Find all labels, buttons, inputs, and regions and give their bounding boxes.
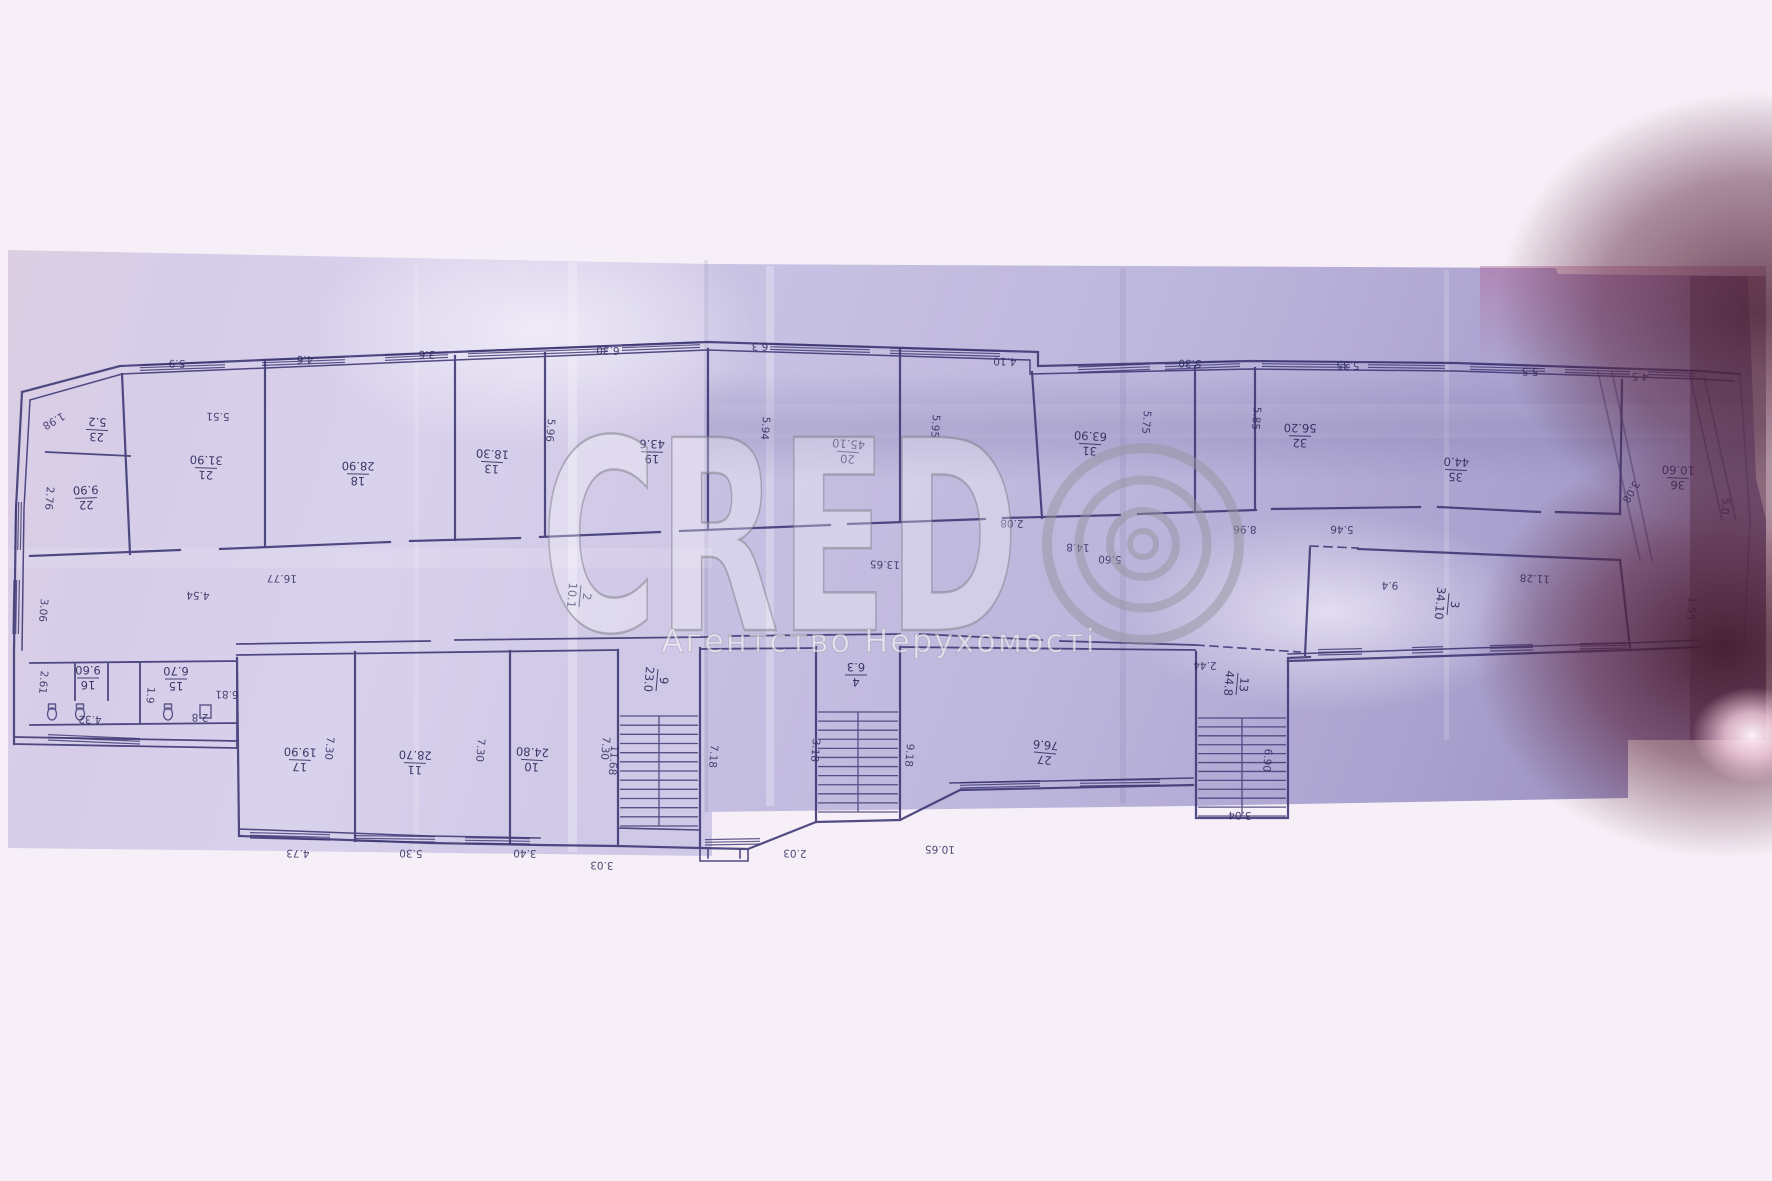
dimension-label: 5.75: [1139, 410, 1153, 434]
dimension-label: 7.18: [706, 744, 720, 768]
dimension-label: 4.6: [296, 353, 313, 365]
dimension-label: 5.46: [1330, 523, 1354, 535]
dimension-label: 5.51: [206, 410, 230, 422]
watermark-subtitle-text: Агентство Нерухомості: [661, 622, 1096, 660]
svg-text:5.75: 5.75: [1139, 410, 1153, 434]
svg-text:18: 18: [350, 474, 365, 488]
svg-text:1.9: 1.9: [143, 686, 156, 704]
svg-text:34.10: 34.10: [1432, 586, 1449, 620]
dimension-label: 6.81: [215, 688, 239, 700]
dimension-label: 16.77: [267, 572, 297, 585]
svg-text:18.30: 18.30: [476, 446, 510, 462]
dimension-label: 9.18: [902, 743, 916, 767]
dimension-label: 2.61: [36, 670, 50, 694]
svg-text:63.90: 63.90: [1074, 428, 1108, 444]
dimension-label: 4.73: [286, 847, 310, 859]
svg-text:31.90: 31.90: [190, 452, 223, 467]
dimension-label: 4.32: [78, 713, 102, 725]
svg-text:2.8: 2.8: [191, 711, 208, 723]
dimension-label: 4.54: [186, 589, 210, 601]
svg-text:4.10: 4.10: [993, 355, 1017, 367]
dimension-label: 9.4: [1381, 579, 1398, 591]
dimension-label: 6.3: [751, 340, 768, 352]
dimension-label: 2.76: [42, 486, 56, 511]
svg-text:15: 15: [169, 679, 184, 693]
svg-text:23: 23: [89, 430, 104, 445]
dimension-label: 6.30: [596, 344, 620, 356]
svg-text:9.60: 9.60: [75, 663, 101, 677]
dimension-label: 7.30: [322, 736, 336, 760]
svg-text:3.40: 3.40: [513, 847, 537, 859]
svg-text:13: 13: [1236, 677, 1251, 693]
dimension-label: 4.10: [993, 355, 1017, 367]
dimension-label: 2.03: [783, 847, 807, 859]
dimension-label: 3.40: [513, 847, 537, 859]
svg-text:4.54: 4.54: [186, 589, 210, 601]
svg-text:6.81: 6.81: [215, 688, 239, 700]
svg-text:6.30: 6.30: [596, 344, 620, 356]
dimension-label: 3.06: [36, 598, 50, 623]
svg-text:13: 13: [484, 462, 499, 477]
dimension-label: 1.9: [143, 686, 156, 704]
svg-text:27: 27: [1036, 752, 1052, 767]
svg-text:32: 32: [1292, 436, 1307, 450]
svg-text:56.20: 56.20: [1284, 421, 1317, 436]
dimension-label: 2.44: [1193, 659, 1217, 671]
svg-text:28.70: 28.70: [399, 747, 432, 762]
svg-text:5.30: 5.30: [399, 847, 423, 859]
svg-text:6.3: 6.3: [751, 340, 768, 352]
svg-text:44.0: 44.0: [1443, 454, 1469, 469]
svg-text:5.35: 5.35: [1336, 359, 1360, 371]
svg-text:9.4: 9.4: [1381, 579, 1398, 591]
svg-text:19.90: 19.90: [284, 744, 317, 759]
svg-text:5.2: 5.2: [88, 415, 107, 430]
svg-text:3.06: 3.06: [36, 598, 50, 623]
svg-text:22: 22: [79, 498, 94, 513]
svg-text:5.51: 5.51: [206, 410, 230, 422]
svg-text:24.80: 24.80: [516, 744, 550, 760]
dimension-label: 5.30: [399, 847, 423, 859]
svg-text:7.18: 7.18: [706, 744, 720, 768]
svg-text:3: 3: [1448, 600, 1463, 609]
svg-text:5.85: 5.85: [1249, 406, 1263, 430]
svg-text:4.32: 4.32: [78, 713, 102, 725]
svg-text:76.6: 76.6: [1032, 737, 1059, 753]
floor-plan-scan: 235.2229.902131.901828.901318.301943.620…: [0, 0, 1772, 1181]
dimension-label: 6.90: [1260, 748, 1274, 772]
svg-text:17: 17: [292, 760, 307, 775]
dimension-label: 3.18: [808, 738, 822, 762]
svg-text:3.03: 3.03: [590, 859, 614, 871]
dimension-label: 3.03: [590, 859, 614, 871]
svg-text:3.04: 3.04: [1228, 809, 1252, 821]
paper-glare-right: [1120, 512, 1540, 712]
svg-text:21: 21: [198, 468, 213, 483]
svg-text:7.30: 7.30: [322, 736, 336, 760]
svg-text:2.61: 2.61: [36, 670, 50, 694]
dimension-label: 7.30: [473, 738, 487, 762]
svg-text:11: 11: [407, 763, 422, 778]
svg-text:10.65: 10.65: [925, 843, 955, 856]
svg-text:10: 10: [524, 760, 539, 775]
svg-text:9.18: 9.18: [902, 743, 916, 767]
svg-text:2.03: 2.03: [783, 847, 807, 859]
svg-text:4.6: 4.6: [296, 353, 313, 365]
svg-text:16.77: 16.77: [267, 572, 297, 585]
dimension-label: 2.8: [191, 711, 208, 723]
dimension-label: 5.30: [1178, 357, 1202, 369]
svg-text:6.70: 6.70: [163, 664, 189, 678]
scanned-floorplan-photo-page: 235.2229.902131.901828.901318.301943.620…: [0, 0, 1772, 1181]
svg-text:9.90: 9.90: [73, 483, 99, 498]
svg-text:35: 35: [1448, 470, 1463, 485]
svg-text:3.6: 3.6: [418, 348, 435, 360]
svg-text:6.90: 6.90: [1260, 748, 1274, 772]
svg-text:28.90: 28.90: [342, 459, 375, 474]
dimension-label: 3.6: [418, 348, 435, 360]
svg-text:7.30: 7.30: [473, 738, 487, 762]
dimension-label: 5.9: [168, 357, 185, 369]
svg-text:16: 16: [81, 678, 96, 692]
dimension-label: 10.65: [925, 843, 955, 856]
svg-text:5.30: 5.30: [1178, 357, 1202, 369]
svg-text:5.46: 5.46: [1330, 523, 1354, 535]
svg-text:4.73: 4.73: [286, 847, 310, 859]
svg-text:2.44: 2.44: [1193, 659, 1217, 671]
svg-text:2.76: 2.76: [42, 486, 56, 511]
svg-text:3.18: 3.18: [808, 738, 822, 762]
dimension-label: 5.35: [1336, 359, 1360, 371]
dimension-label: 5.85: [1249, 406, 1263, 430]
svg-text:44.8: 44.8: [1221, 670, 1237, 697]
svg-text:5.9: 5.9: [168, 357, 185, 369]
dimension-label: 3.04: [1228, 809, 1252, 821]
